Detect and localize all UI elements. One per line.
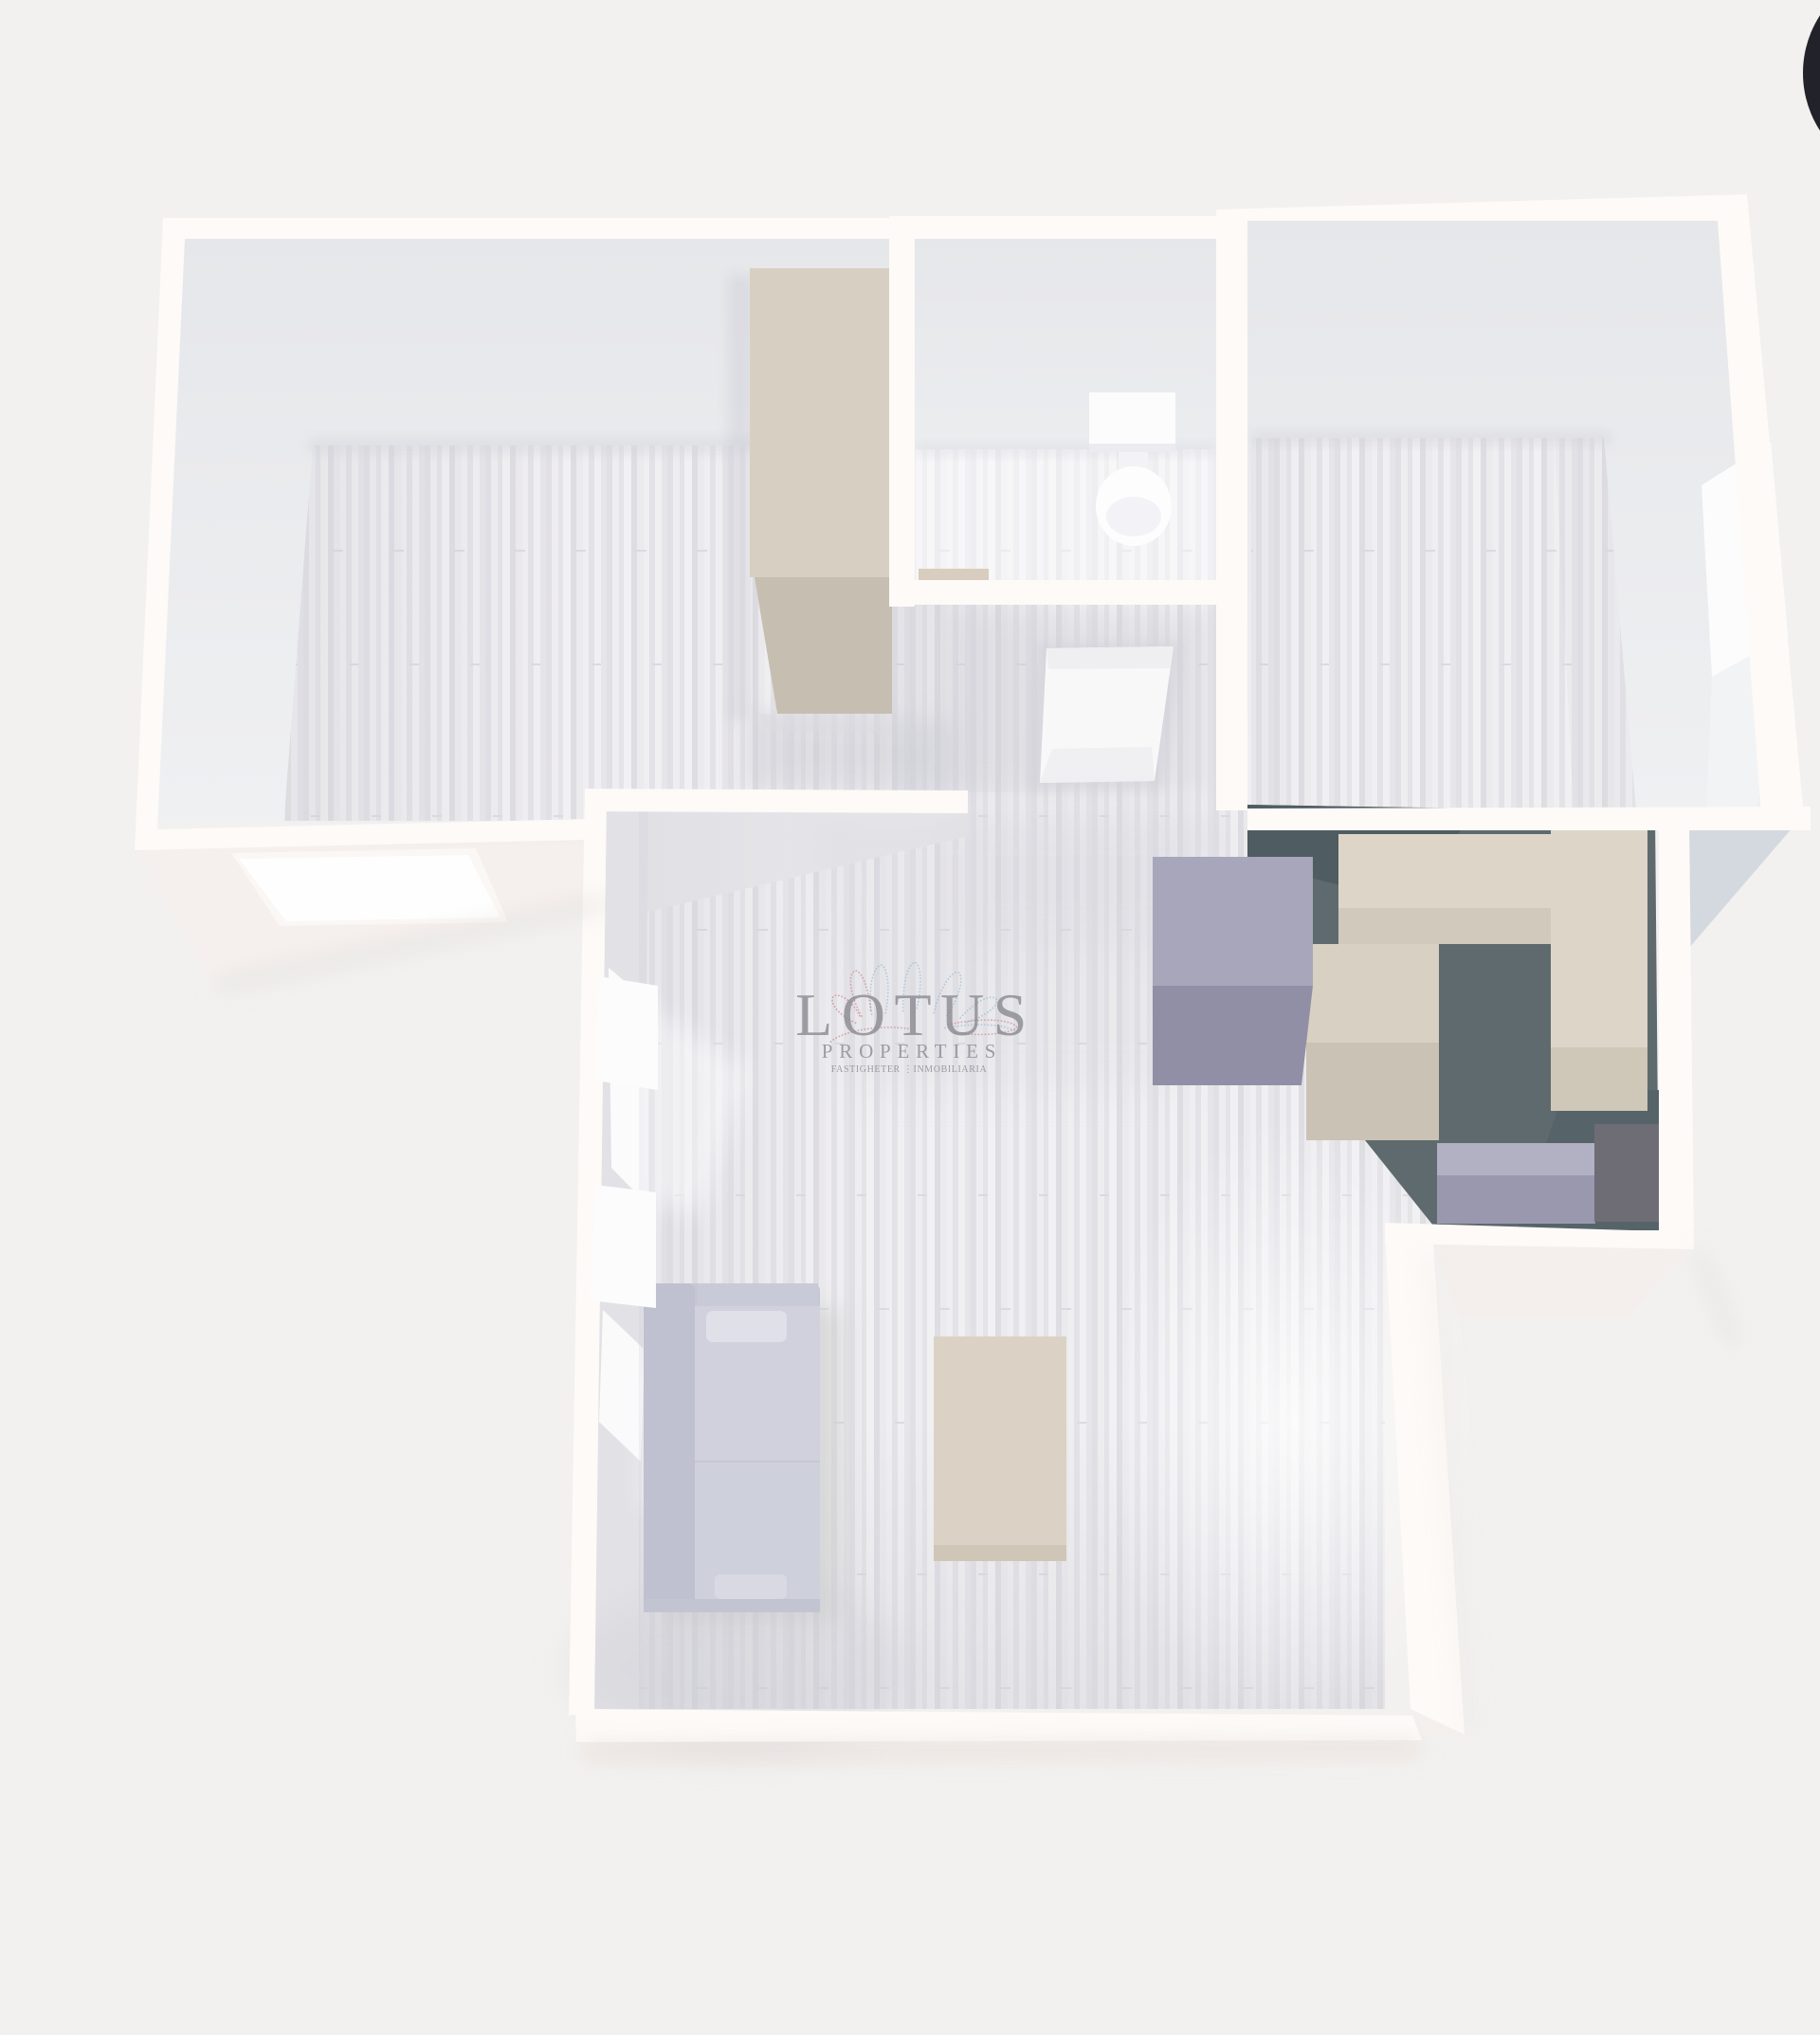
svg-text:FASTIGHETER ⋮INMOBILIARIA: FASTIGHETER ⋮INMOBILIARIA xyxy=(831,1064,988,1075)
svg-text:LOTUS: LOTUS xyxy=(795,981,1036,1048)
svg-text:PROPERTIES: PROPERTIES xyxy=(822,1040,1002,1063)
